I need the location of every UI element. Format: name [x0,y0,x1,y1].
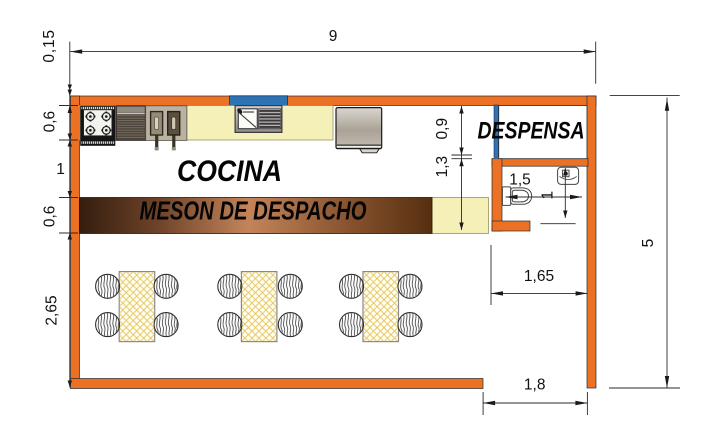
svg-text:1: 1 [540,191,557,200]
svg-text:1,5: 1,5 [509,172,531,189]
svg-text:COCINA: COCINA [177,155,282,188]
svg-text:MESON DE DESPACHO: MESON DE DESPACHO [140,196,367,226]
svg-text:1,8: 1,8 [524,377,546,394]
svg-text:1,3: 1,3 [434,156,451,178]
svg-text:DESPENSA: DESPENSA [478,118,585,145]
svg-text:2,65: 2,65 [43,295,60,325]
svg-text:0,15: 0,15 [41,29,58,62]
svg-text:5: 5 [640,239,657,248]
svg-text:1,65: 1,65 [524,268,554,285]
svg-text:0,9: 0,9 [434,118,451,140]
svg-text:9: 9 [329,28,338,45]
svg-text:1: 1 [56,161,65,178]
svg-text:0,6: 0,6 [42,206,59,228]
svg-text:0,6: 0,6 [41,111,58,133]
